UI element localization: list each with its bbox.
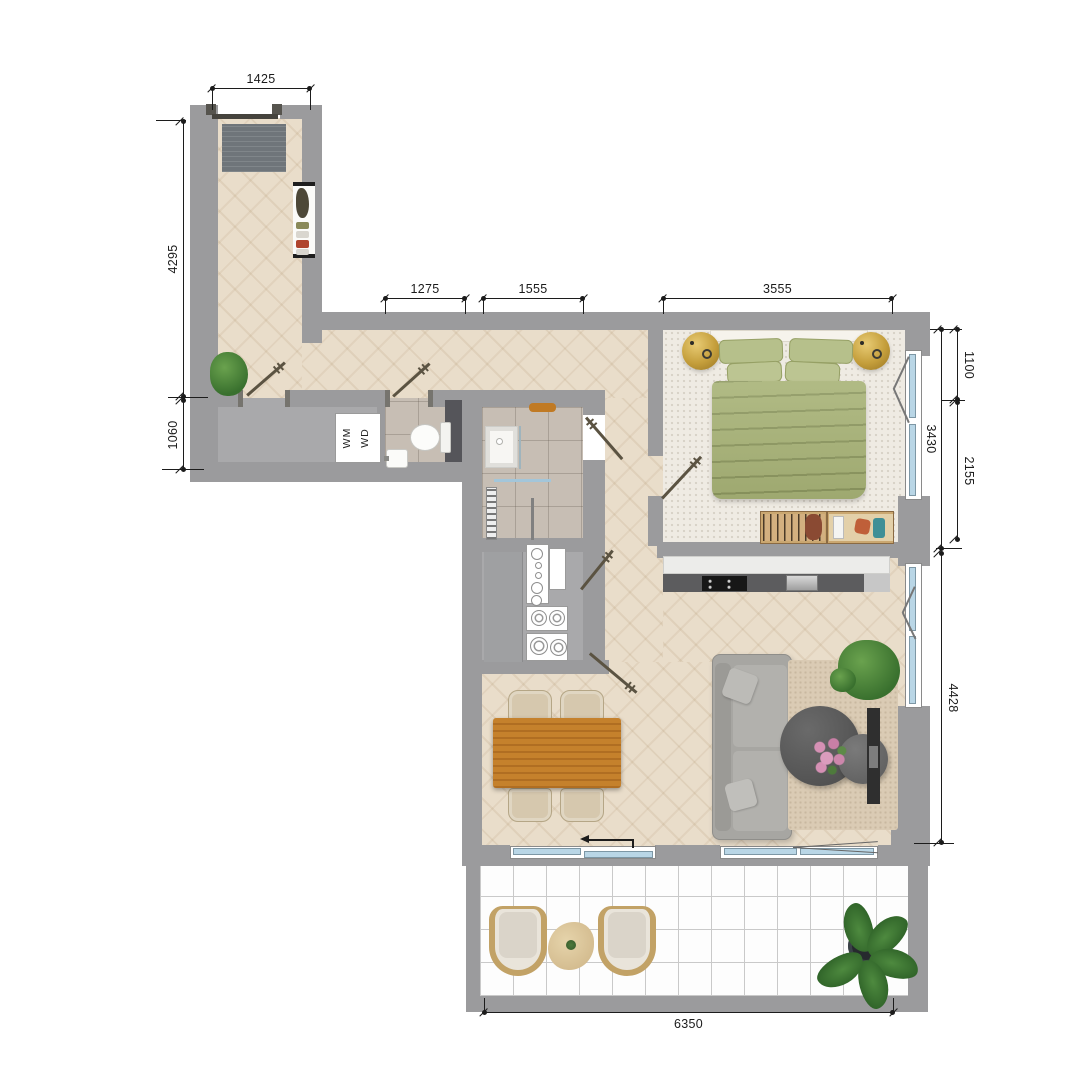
- coat-on-rack: [296, 188, 309, 218]
- dim-window-offset: 1100: [957, 329, 958, 400]
- lamp-ring: [872, 349, 882, 359]
- dim-label: 1275: [410, 282, 439, 296]
- glass-divider: [531, 498, 534, 540]
- toiletries-shelf: [529, 403, 556, 412]
- dim-bedroom-width: 3555: [663, 298, 892, 299]
- dim-hall-top-a: 1275: [385, 298, 465, 299]
- chair-cushion: [499, 912, 537, 958]
- wall-bottom-under-storage: [190, 462, 464, 482]
- dim-entry-width: 1425: [212, 88, 310, 89]
- dim-label: 2155: [962, 456, 976, 485]
- dim-hall-length: 4295: [183, 121, 184, 397]
- dryer-label: WD: [359, 428, 371, 448]
- door-jamb: [285, 390, 290, 407]
- sliding-door-arrow: [589, 839, 634, 841]
- dim-label: 3555: [763, 282, 792, 296]
- witness-line: [310, 88, 311, 110]
- sliding-door-arrow-drop: [632, 839, 634, 848]
- toilet-bowl: [410, 424, 440, 451]
- dim-hall-top-b: 1555: [483, 298, 583, 299]
- dim-utility-depth: 1060: [183, 400, 184, 470]
- nightstand-left: [682, 332, 720, 370]
- shoe-pair: [296, 231, 309, 238]
- dim-label: 6350: [674, 1017, 703, 1031]
- sink-tap: [535, 572, 542, 579]
- hanging-clothes: [805, 514, 822, 540]
- shelf-basket: [873, 518, 885, 538]
- burner: [549, 610, 565, 626]
- dining-table: [493, 718, 621, 788]
- living-window-glass: [909, 636, 916, 704]
- toilet-tank: [440, 422, 451, 453]
- sink-basin: [531, 582, 543, 594]
- wall-kitchen-bottom: [462, 660, 609, 674]
- wall-entry-left: [190, 105, 218, 482]
- doormat: [222, 124, 286, 172]
- table-plant-sprig: [566, 940, 576, 950]
- pillow: [789, 338, 854, 364]
- kitchen-counter-left: [484, 552, 523, 662]
- dim-bedroom-depth: 3430: [941, 329, 942, 549]
- shoe-rack-niche: [293, 182, 315, 258]
- wall-balcony-band-c: [878, 845, 912, 866]
- dim-window-span: 2155: [957, 402, 958, 540]
- lamp-dot: [690, 341, 694, 345]
- cooktop: [702, 576, 747, 591]
- door-jamb: [428, 390, 433, 407]
- wall-left-lower: [462, 390, 482, 862]
- bedroom-window-glass: [909, 354, 916, 418]
- shower-tray: [485, 426, 518, 468]
- wall-bedroom-top: [648, 312, 930, 330]
- kitchen-counter-front: [663, 574, 864, 592]
- sink-tap: [535, 562, 542, 569]
- dim-label: 1425: [246, 72, 275, 86]
- witness-line: [168, 397, 208, 398]
- shelf-chair: [854, 518, 871, 535]
- burner: [550, 639, 567, 656]
- shoe-pair: [296, 249, 309, 255]
- basin-tap: [384, 456, 389, 461]
- sink-basin: [531, 595, 542, 606]
- dining-chair: [560, 788, 604, 822]
- wardrobe-divider: [826, 512, 828, 543]
- wall-hallway-bottom-b: [285, 390, 390, 407]
- shelf-panel: [833, 516, 844, 539]
- dim-label: 1060: [166, 420, 180, 449]
- shoe-rack-top-bar: [293, 182, 315, 186]
- balcony-chair: [598, 906, 656, 976]
- sink-basin: [531, 548, 543, 560]
- floor-plan: WM WD: [0, 0, 1092, 1092]
- wall-bedroom-left-lower: [648, 496, 663, 546]
- lamp-dot: [860, 341, 864, 345]
- shower-screen: [494, 479, 551, 482]
- dim-label: 1100: [962, 350, 976, 378]
- wall-balcony-right: [908, 864, 928, 1012]
- washbasin: [386, 449, 408, 468]
- wall-balcony-bottom: [466, 996, 923, 1012]
- washer-label: WM: [341, 428, 353, 449]
- shoe-pair: [296, 222, 309, 229]
- sliding-door-arrowhead: [580, 835, 589, 843]
- wall-bath-right-upper: [583, 390, 605, 415]
- chair-cushion: [608, 912, 646, 958]
- sliding-door-glass: [513, 848, 581, 855]
- dim-label: 4295: [166, 244, 180, 273]
- bedroom-window-glass: [909, 424, 916, 496]
- dim-balcony-width: 6350: [484, 1012, 893, 1013]
- kitchen-counter-end: [864, 574, 890, 592]
- tv-stand: [869, 746, 878, 768]
- kitchen-side-panel: [549, 548, 566, 590]
- living-plant-small: [830, 668, 856, 692]
- floor-hallway: [302, 330, 663, 398]
- wardrobe: [760, 511, 894, 544]
- wall-balcony-left: [466, 862, 480, 1012]
- kitchen-counter-top: [663, 556, 890, 574]
- towel-radiator: [486, 487, 497, 540]
- entry-door-leaf: [212, 114, 278, 119]
- shower-glass: [519, 426, 521, 469]
- burner: [530, 637, 548, 655]
- dim-label: 1555: [518, 282, 547, 296]
- wall-balcony-band-b: [655, 845, 720, 866]
- burner: [531, 610, 547, 626]
- flower-vase: [806, 734, 852, 778]
- tv-console: [867, 708, 880, 804]
- sliding-door-glass: [584, 851, 653, 858]
- door-jamb: [385, 390, 390, 407]
- dining-chair: [508, 788, 552, 822]
- living-south-window-glass: [724, 848, 797, 855]
- bed-duvet: [712, 381, 866, 499]
- wall-bedroom-left-upper: [648, 330, 663, 456]
- dim-living-depth: 4428: [941, 553, 942, 843]
- nightstand-right: [852, 332, 890, 370]
- shoe-pair: [296, 240, 309, 248]
- dim-label: 3430: [924, 424, 938, 453]
- lamp-ring: [702, 349, 712, 359]
- witness-line: [212, 88, 213, 110]
- shower-drain: [496, 438, 503, 445]
- counter-sink: [786, 575, 818, 591]
- wall-hall-top: [302, 312, 663, 330]
- balcony-chair: [489, 906, 547, 976]
- washer-dryer-unit: WM WD: [335, 413, 381, 463]
- hallway-plant: [210, 352, 248, 396]
- dim-label: 4428: [946, 683, 960, 712]
